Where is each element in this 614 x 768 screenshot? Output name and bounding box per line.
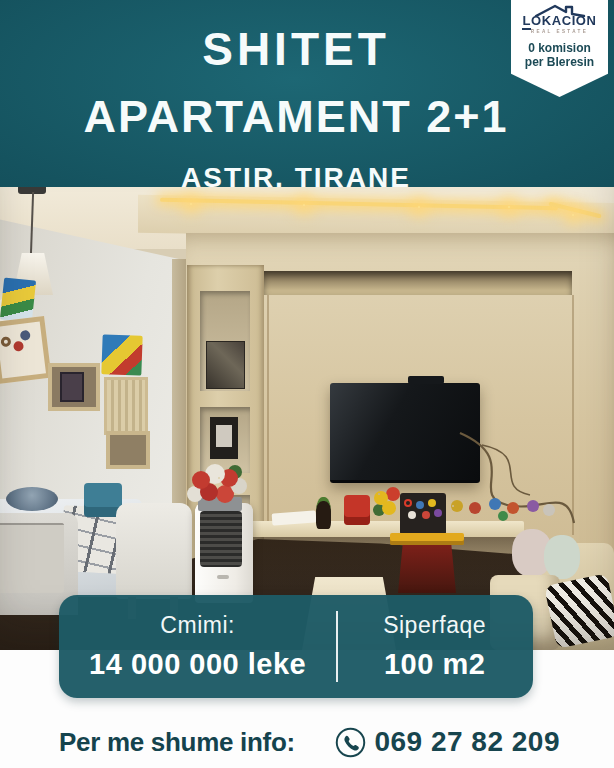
listing-info-card: Cmimi: 14 000 000 leke Siperfaqe 100 m2	[59, 595, 533, 698]
price-value: 14 000 000 leke	[59, 648, 336, 681]
offer-line1: 0 komision	[511, 41, 608, 55]
phone-number: 069 27 82 209	[374, 726, 560, 758]
contact-label: Per me shume info:	[59, 727, 295, 758]
commission-offer: 0 komision per Bleresin	[511, 41, 608, 70]
poster-title-line2: APARTAMENT 2+1	[0, 94, 592, 139]
brand-logo: LLOKACIONOKACION REAL ESTATE	[511, 0, 608, 34]
title-block: SHITET APARTAMENT 2+1 ASTIR, TIRANE	[0, 0, 592, 192]
card-divider	[336, 611, 338, 682]
area-label: Siperfaqe	[336, 612, 533, 639]
contact-row: Per me shume info: 069 27 82 209	[59, 722, 560, 762]
poster-title-line1: SHITET	[0, 26, 592, 72]
phone-group: 069 27 82 209	[335, 726, 560, 758]
phone-icon	[335, 727, 366, 758]
price-label: Cmimi:	[59, 612, 336, 639]
house-roof-icon	[528, 4, 592, 17]
price-section: Cmimi: 14 000 000 leke	[59, 612, 336, 681]
area-section: Siperfaqe 100 m2	[336, 612, 533, 681]
area-value: 100 m2	[336, 648, 533, 681]
photo-vignette	[0, 187, 614, 650]
offer-line2: per Bleresin	[511, 55, 608, 69]
apartment-photo	[0, 187, 614, 650]
real-estate-poster: SHITET APARTAMENT 2+1 ASTIR, TIRANE LLOK…	[0, 0, 614, 768]
